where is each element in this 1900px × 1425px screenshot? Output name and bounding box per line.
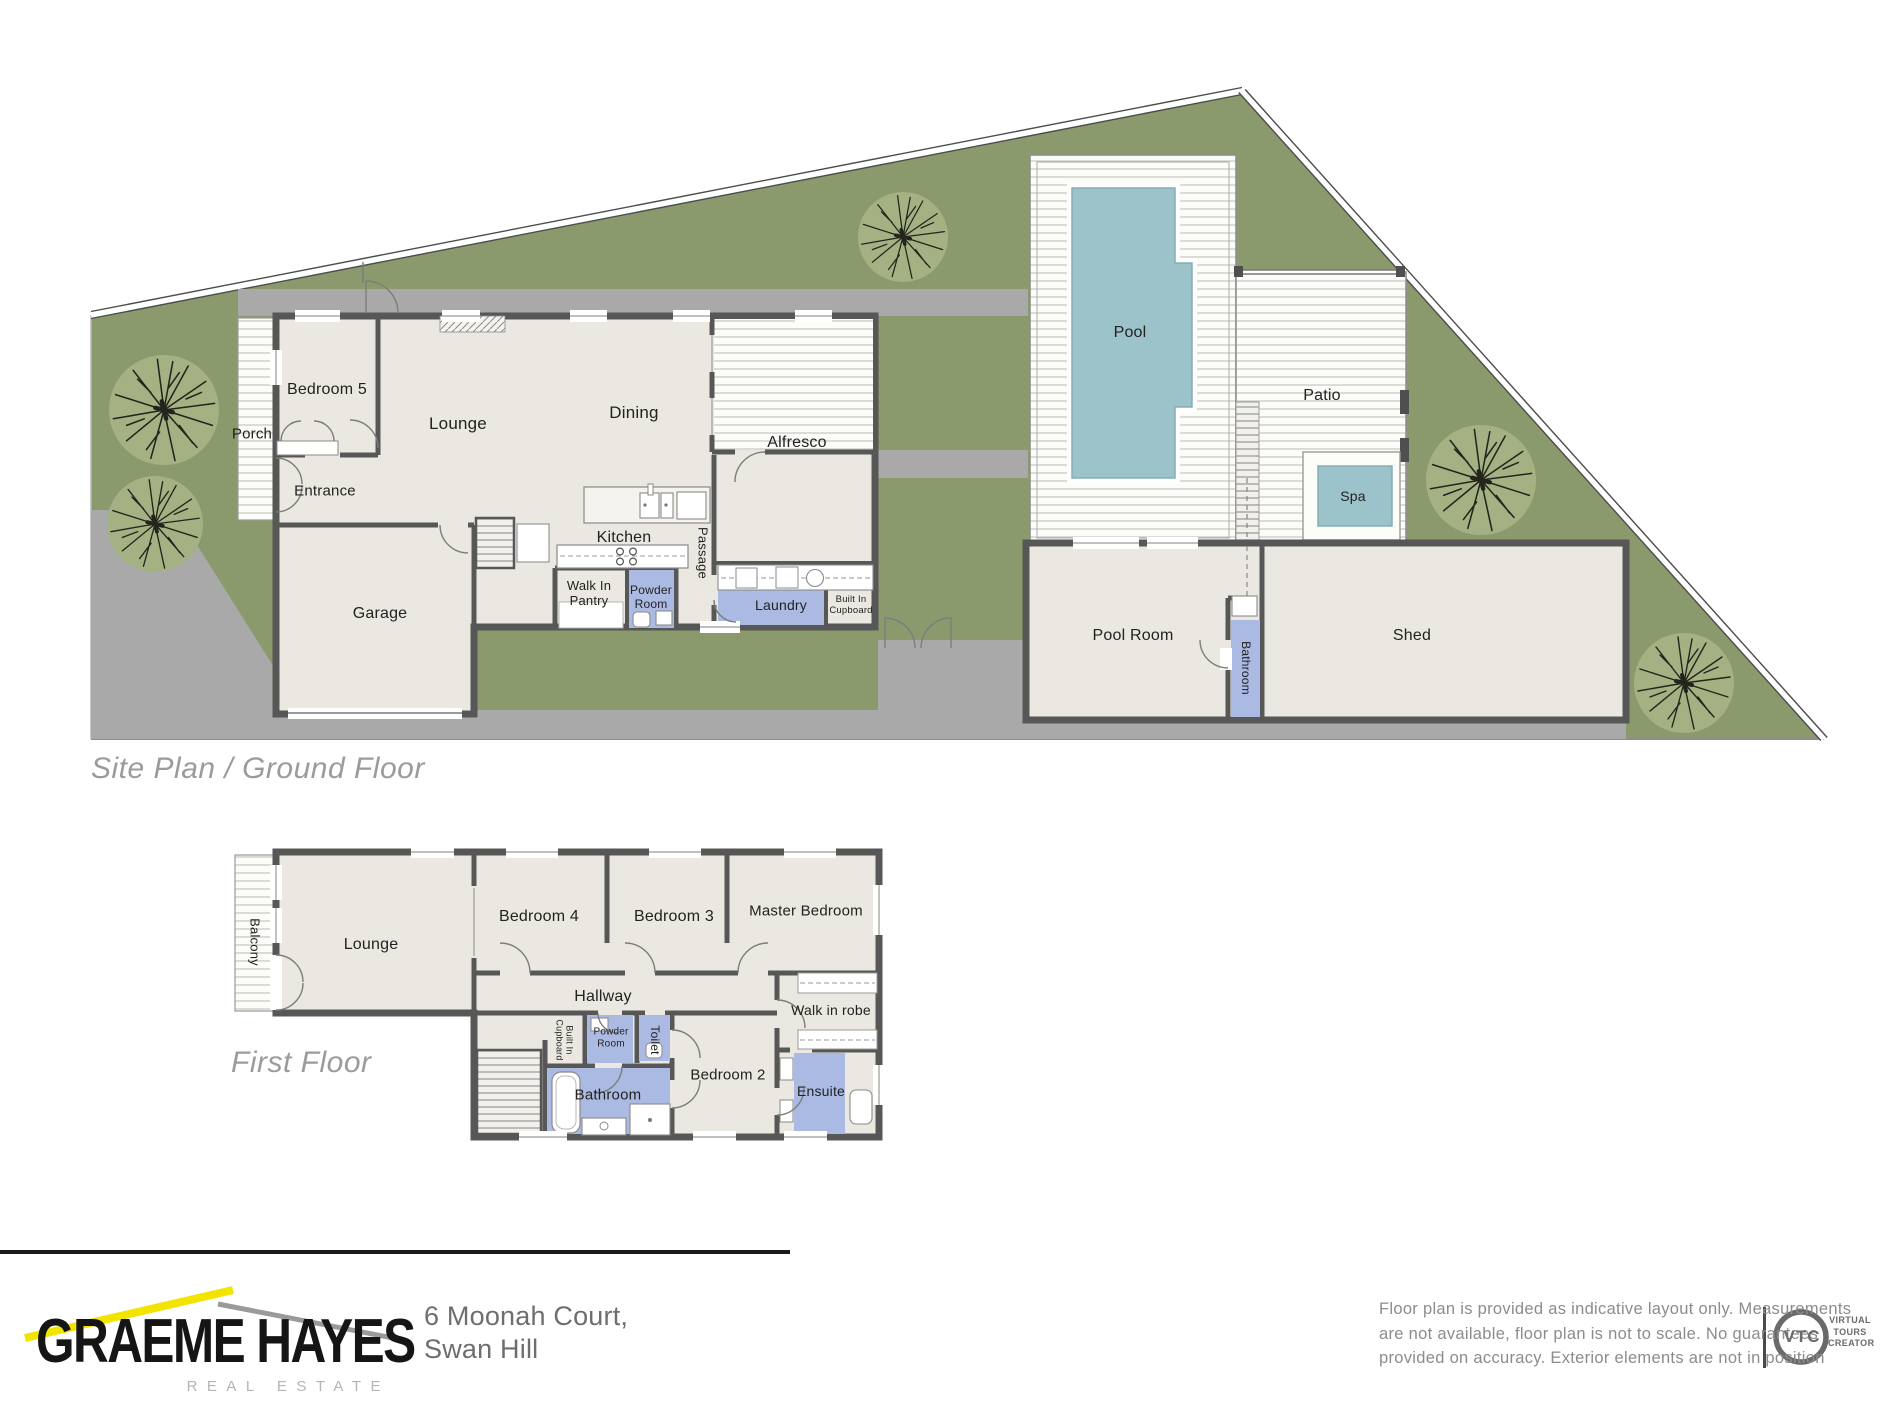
- bedroom5-robe: [277, 441, 338, 455]
- floorplan-graphics: [0, 0, 1900, 1425]
- brand-subtitle: REAL ESTATE: [38, 1378, 390, 1395]
- footer-divider-line: [0, 1250, 790, 1254]
- alfresco-deck: [714, 319, 873, 450]
- pool-steps: [1236, 402, 1259, 543]
- pool-bathroom-room: [1231, 620, 1260, 717]
- powder-room-ground-room: [629, 570, 674, 628]
- ensuite-room: [794, 1053, 845, 1134]
- disclaimer-line: provided on accuracy. Exterior elements …: [1379, 1346, 1851, 1371]
- brand-logo: GRAEME HAYES: [36, 1306, 386, 1377]
- pool-room-building: [1026, 537, 1626, 720]
- balcony-deck: [235, 855, 276, 1011]
- floorplan-page: PorchBedroom 5LoungeDiningAlfrescoEntran…: [0, 0, 1900, 1425]
- kitchen-bench: [557, 545, 688, 568]
- address-line-1: 6 Moonah Court,: [424, 1300, 628, 1333]
- property-address: 6 Moonah Court, Swan Hill: [424, 1300, 628, 1366]
- pool: [1072, 188, 1192, 478]
- first-floor-building: [235, 846, 885, 1143]
- first-stairs: [477, 1050, 541, 1134]
- vtc-logo-caption: VIRTUAL TOURS CREATOR: [1828, 1315, 1872, 1350]
- kitchen-island: [584, 484, 710, 523]
- address-line-2: Swan Hill: [424, 1333, 628, 1366]
- first-floor-title: First Floor: [231, 1046, 372, 1080]
- site-plan-title: Site Plan / Ground Floor: [91, 752, 425, 786]
- spa: [1303, 452, 1400, 540]
- pantry-shelf: [559, 602, 623, 628]
- porch: [238, 318, 274, 520]
- vtc-logo-text: VTC: [1776, 1327, 1828, 1347]
- pool-bathroom-toilet: [1232, 596, 1257, 616]
- disclaimer-line: Floor plan is provided as indicative lay…: [1379, 1297, 1851, 1322]
- ground-stairs: [476, 518, 514, 568]
- brand-name: GRAEME HAYES: [36, 1306, 316, 1377]
